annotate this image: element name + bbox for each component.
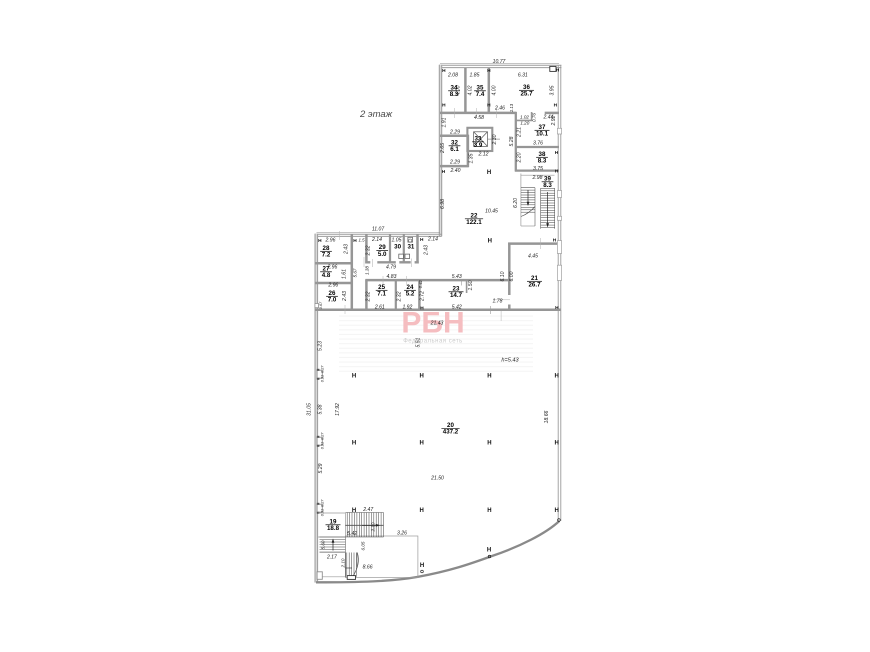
svg-text:1.92: 1.92: [402, 304, 412, 310]
svg-text:2.47: 2.47: [362, 507, 373, 513]
svg-text:4.58: 4.58: [474, 115, 484, 121]
svg-text:3.26: 3.26: [397, 531, 407, 537]
svg-text:H: H: [555, 440, 559, 446]
svg-text:2.10: 2.10: [340, 558, 345, 568]
svg-text:26.7: 26.7: [528, 282, 541, 289]
svg-text:6.00: 6.00: [509, 271, 515, 281]
svg-text:H: H: [420, 306, 424, 312]
svg-text:8.66: 8.66: [363, 565, 373, 571]
svg-text:2.96: 2.96: [325, 238, 336, 244]
svg-text:H: H: [487, 440, 491, 446]
svg-text:2 этаж: 2 этаж: [359, 109, 393, 120]
svg-text:H: H: [442, 102, 446, 108]
svg-text:0.67: 0.67: [319, 301, 323, 309]
svg-text:H: H: [353, 238, 357, 244]
svg-text:437.2: 437.2: [443, 429, 459, 436]
svg-text:H: H: [487, 102, 491, 108]
svg-text:5.51: 5.51: [416, 337, 422, 347]
svg-text:2.65: 2.65: [440, 143, 446, 154]
svg-text:18.8: 18.8: [327, 525, 340, 532]
svg-text:0.27: 0.27: [320, 365, 324, 373]
svg-text:5.67: 5.67: [352, 268, 357, 277]
svg-text:31.05: 31.05: [306, 403, 312, 416]
svg-text:Федеральная сеть: Федеральная сеть: [403, 339, 462, 345]
svg-text:5.2: 5.2: [406, 291, 415, 298]
svg-text:2.92: 2.92: [551, 115, 557, 126]
svg-text:H: H: [487, 68, 491, 74]
svg-text:H: H: [555, 305, 559, 311]
svg-text:2.08: 2.08: [447, 72, 458, 78]
svg-text:1.85: 1.85: [470, 72, 480, 78]
svg-text:0.31: 0.31: [320, 509, 324, 516]
svg-text:5.28: 5.28: [509, 136, 515, 146]
svg-text:2.32: 2.32: [365, 291, 371, 302]
svg-text:0.42: 0.42: [418, 279, 423, 288]
svg-text:H: H: [352, 373, 356, 379]
svg-text:4.83: 4.83: [387, 274, 397, 280]
svg-text:H: H: [318, 238, 322, 244]
svg-text:1.20: 1.20: [520, 120, 529, 125]
svg-text:18.66: 18.66: [544, 410, 550, 423]
svg-text:11.07: 11.07: [372, 227, 385, 233]
svg-text:4.00: 4.00: [455, 85, 461, 95]
svg-text:2.14: 2.14: [371, 237, 382, 243]
svg-text:H: H: [420, 373, 424, 379]
svg-text:2.43: 2.43: [342, 291, 348, 302]
svg-text:2.29: 2.29: [449, 159, 460, 165]
svg-text:H: H: [554, 102, 558, 108]
svg-text:H: H: [553, 238, 557, 244]
svg-text:H: H: [555, 508, 559, 514]
svg-text:6.98: 6.98: [440, 199, 446, 209]
svg-text:H: H: [442, 169, 446, 175]
svg-text:8.3: 8.3: [543, 182, 552, 189]
svg-text:H: H: [487, 548, 491, 554]
svg-text:3.75: 3.75: [533, 166, 543, 172]
svg-text:H: H: [352, 508, 356, 514]
svg-text:1.78: 1.78: [493, 298, 503, 304]
svg-text:1.61: 1.61: [341, 269, 347, 279]
svg-text:1.35: 1.35: [469, 153, 475, 163]
svg-text:17.92: 17.92: [335, 403, 341, 416]
svg-text:2.43: 2.43: [424, 245, 430, 256]
svg-text:2.20: 2.20: [517, 152, 523, 163]
svg-text:H: H: [442, 68, 446, 74]
svg-text:5.0: 5.0: [378, 251, 387, 258]
svg-text:0.27: 0.27: [320, 499, 324, 507]
svg-text:4.02: 4.02: [467, 85, 473, 95]
svg-text:H: H: [420, 508, 424, 514]
svg-text:3.9: 3.9: [474, 142, 483, 149]
svg-text:2.72: 2.72: [420, 291, 426, 302]
svg-text:6.1: 6.1: [450, 146, 459, 153]
svg-text:H: H: [555, 168, 559, 174]
svg-text:2.98: 2.98: [532, 175, 543, 181]
svg-text:1.05: 1.05: [392, 238, 402, 244]
svg-text:H: H: [487, 508, 491, 514]
svg-text:0.76: 0.76: [532, 113, 537, 122]
svg-text:5.29: 5.29: [318, 463, 324, 473]
svg-text:4.45: 4.45: [528, 254, 538, 260]
svg-text:1.38: 1.38: [365, 266, 370, 275]
svg-text:2.30: 2.30: [492, 134, 498, 145]
svg-text:2.12: 2.12: [478, 151, 489, 157]
svg-text:H: H: [487, 373, 491, 379]
svg-text:10.45: 10.45: [485, 208, 498, 214]
svg-text:5.60: 5.60: [321, 540, 326, 549]
svg-text:2.17: 2.17: [326, 555, 337, 561]
svg-text:0.31: 0.31: [320, 375, 324, 382]
svg-text:6.31: 6.31: [518, 72, 528, 78]
svg-text:h=5.43: h=5.43: [501, 358, 519, 364]
svg-text:7.4: 7.4: [476, 91, 485, 98]
svg-text:4.8: 4.8: [322, 272, 331, 279]
svg-text:31: 31: [407, 243, 414, 250]
svg-text:4.79: 4.79: [386, 265, 396, 271]
svg-text:25.7: 25.7: [520, 91, 533, 98]
svg-text:5.43: 5.43: [452, 274, 462, 280]
svg-text:6.20: 6.20: [513, 198, 519, 208]
svg-text:21.43: 21.43: [430, 320, 444, 326]
svg-text:1.5: 1.5: [358, 237, 365, 242]
svg-text:H: H: [555, 150, 559, 156]
svg-text:2.14: 2.14: [427, 237, 438, 243]
svg-text:6.10: 6.10: [500, 271, 506, 281]
svg-text:2.96: 2.96: [326, 265, 337, 271]
svg-text:2.32: 2.32: [396, 291, 402, 302]
svg-text:1.91: 1.91: [442, 117, 448, 127]
svg-text:21.50: 21.50: [430, 476, 444, 482]
svg-text:1.50: 1.50: [468, 280, 474, 290]
svg-text:3.76: 3.76: [533, 141, 543, 147]
svg-text:14.7: 14.7: [450, 292, 463, 299]
svg-text:2.32: 2.32: [365, 245, 371, 256]
svg-text:2.61: 2.61: [374, 304, 385, 310]
svg-text:H: H: [556, 67, 560, 73]
svg-text:0.27: 0.27: [320, 432, 324, 440]
svg-text:H: H: [488, 239, 492, 245]
svg-text:6.05: 6.05: [361, 541, 366, 550]
svg-text:122.1: 122.1: [466, 219, 482, 226]
svg-text:5.38: 5.38: [318, 404, 324, 414]
svg-text:H: H: [352, 440, 356, 446]
svg-text:2.29: 2.29: [449, 130, 460, 136]
svg-text:2.21: 2.21: [517, 127, 523, 138]
svg-text:2.46: 2.46: [494, 106, 505, 112]
svg-text:H: H: [420, 563, 424, 569]
svg-text:7.0: 7.0: [328, 297, 337, 304]
svg-text:10.1: 10.1: [536, 131, 549, 138]
svg-text:5.42: 5.42: [452, 305, 462, 311]
svg-text:7.1: 7.1: [377, 291, 386, 298]
svg-text:7.2: 7.2: [322, 252, 331, 259]
svg-text:1.02: 1.02: [520, 115, 529, 120]
svg-text:10.77: 10.77: [493, 59, 506, 65]
svg-text:4.00: 4.00: [491, 85, 497, 95]
svg-text:2.96: 2.96: [327, 283, 338, 289]
svg-text:H: H: [420, 440, 424, 446]
svg-text:H: H: [487, 170, 491, 176]
svg-text:H: H: [555, 373, 559, 379]
svg-text:0.31: 0.31: [320, 442, 324, 449]
svg-text:2.40: 2.40: [450, 168, 461, 174]
svg-text:1.13: 1.13: [509, 103, 514, 112]
svg-text:8.3: 8.3: [538, 158, 547, 165]
svg-text:3.95: 3.95: [549, 85, 555, 95]
svg-text:5.23: 5.23: [318, 341, 324, 351]
svg-text:30: 30: [394, 243, 401, 250]
svg-text:2.43: 2.43: [344, 244, 350, 255]
svg-text:H: H: [420, 237, 424, 243]
